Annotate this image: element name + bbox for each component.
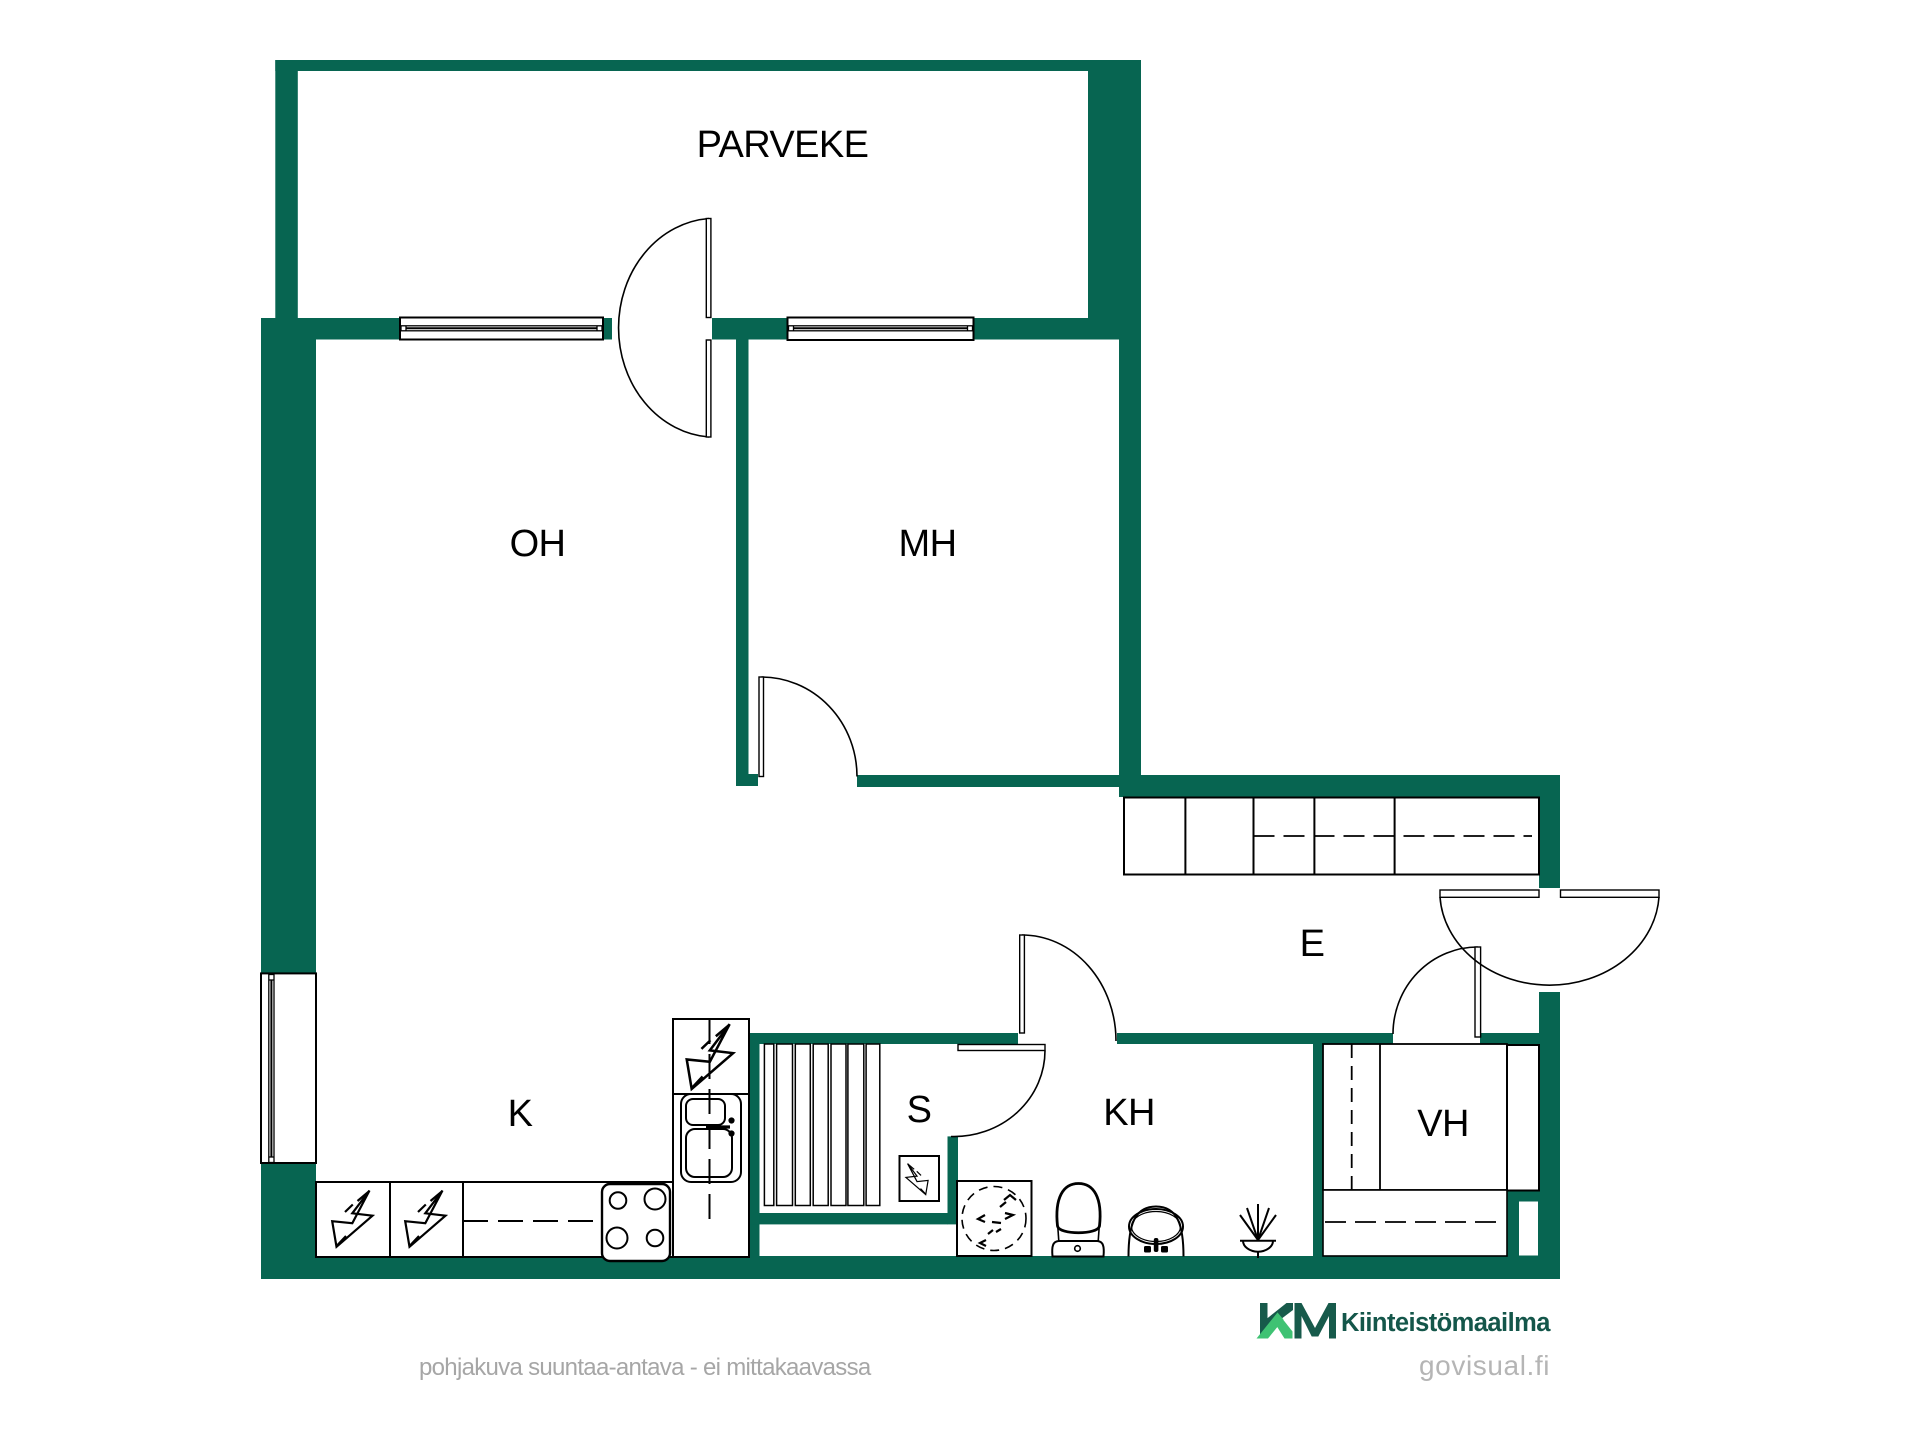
svg-text:VH: VH <box>1417 1103 1469 1145</box>
svg-text:pohjakuva suuntaa-antava - ei: pohjakuva suuntaa-antava - ei mittakaava… <box>419 1354 872 1381</box>
svg-text:govisual.fi: govisual.fi <box>1419 1350 1550 1381</box>
svg-text:E: E <box>1300 923 1325 965</box>
svg-text:KH: KH <box>1103 1092 1155 1134</box>
svg-text:OH: OH <box>510 523 566 565</box>
svg-text:PARVEKE: PARVEKE <box>697 124 869 166</box>
svg-text:K: K <box>508 1093 533 1135</box>
svg-text:S: S <box>907 1089 932 1131</box>
svg-text:Kiinteistömaailma: Kiinteistömaailma <box>1341 1309 1551 1337</box>
svg-text:MH: MH <box>899 523 957 565</box>
